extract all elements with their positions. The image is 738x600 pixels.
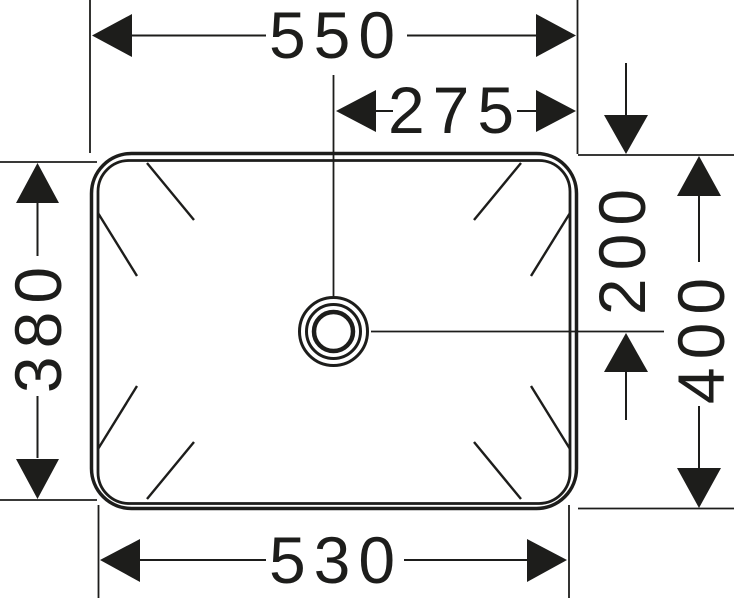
corner-mark-bottom-left-b <box>98 386 137 449</box>
drain-circles <box>300 298 368 366</box>
corner-mark-bottom-right-a <box>474 442 521 499</box>
arrowhead-right-icon <box>536 14 576 57</box>
arrowhead-left-icon <box>336 90 376 132</box>
drain-outer-circle <box>300 298 368 366</box>
arrowhead-up-icon <box>16 163 59 203</box>
arrowhead-up-icon <box>604 333 648 372</box>
arrowhead-right-icon <box>527 539 567 582</box>
dim-label-right-height: 400 <box>668 270 734 404</box>
corner-mark-top-right-b <box>531 213 570 276</box>
arrowhead-left-icon <box>92 14 132 57</box>
corner-mark-bottom-left-a <box>147 442 194 499</box>
arrowhead-up-icon <box>677 156 721 196</box>
dim-label-center-offset: 275 <box>388 77 522 143</box>
drain-inner-circle <box>314 312 353 351</box>
arrowhead-left-icon <box>100 539 140 582</box>
dim-label-top-width: 550 <box>269 2 403 68</box>
dimension-drawing: 550 275 380 530 200 400 <box>0 0 738 600</box>
arrowhead-down-icon <box>16 459 59 499</box>
arrowhead-down-icon <box>677 468 721 508</box>
corner-mark-top-left-b <box>98 213 137 276</box>
dim-label-drain-offset: 200 <box>589 181 655 315</box>
dim-label-bottom-width: 530 <box>269 527 403 593</box>
dim-label-left-height: 380 <box>5 259 71 393</box>
arrowhead-right-icon <box>536 90 576 132</box>
corner-mark-top-right-a <box>474 163 521 220</box>
corner-mark-top-left-a <box>147 163 194 220</box>
arrowhead-down-icon <box>604 115 648 154</box>
corner-mark-bottom-right-b <box>531 386 570 449</box>
